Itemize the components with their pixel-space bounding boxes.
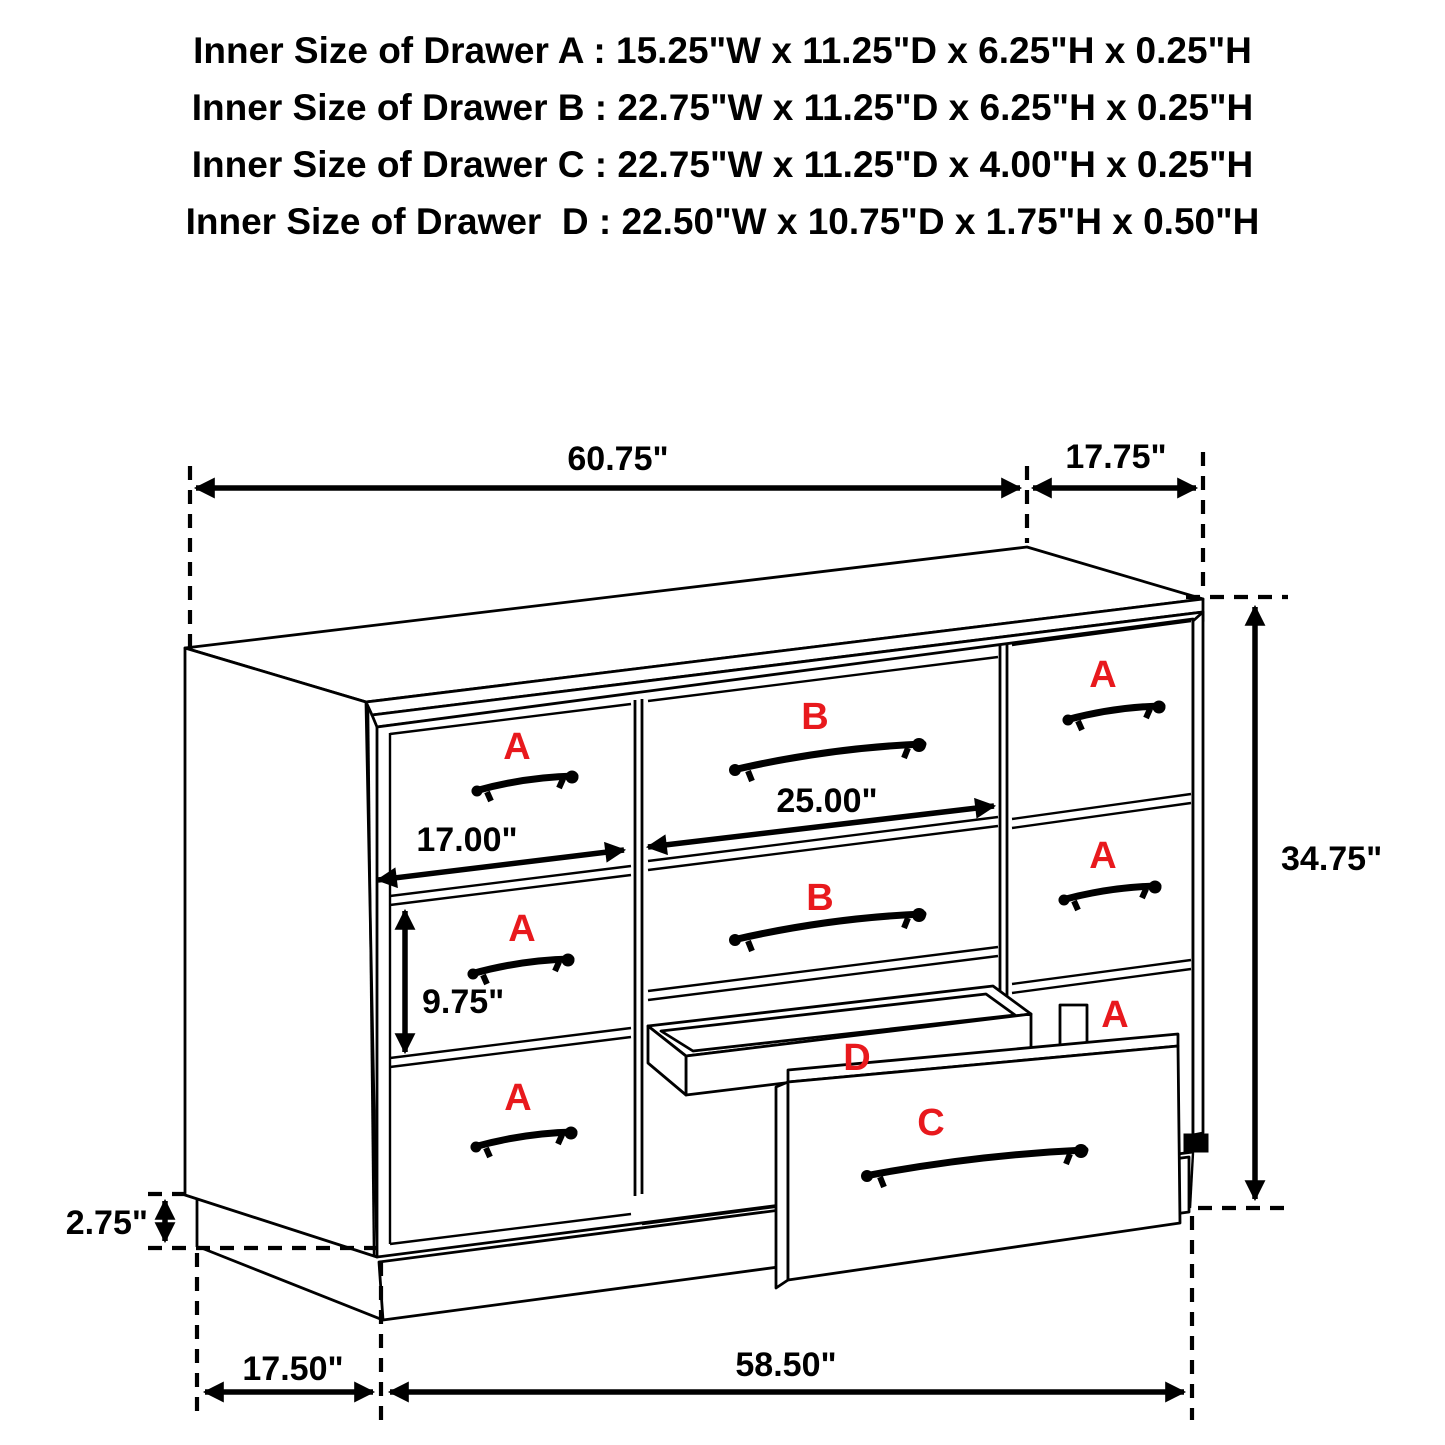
dimension-top-width: 60.75"	[196, 440, 1020, 488]
slide-bracket	[1184, 1134, 1208, 1152]
dresser-dimension-diagram: A A A B B A A A D C 60.75" 17.75"	[0, 0, 1445, 1445]
drawer-a-top-right-label: A	[1089, 654, 1116, 696]
dimension-left-drawer-width-value: 17.00"	[416, 821, 517, 859]
dimension-left-drawer-height-value: 9.75"	[422, 983, 504, 1021]
cabinet-right-edge	[1193, 612, 1203, 1135]
drawer-b-mid-label: B	[806, 877, 833, 919]
dimension-overall-height: 34.75"	[1255, 607, 1382, 1199]
dimension-base-front-width: 58.50"	[390, 1346, 1184, 1392]
dimension-base-height: 2.75"	[66, 1201, 165, 1242]
tray-d-label: D	[843, 1037, 870, 1079]
dimension-overall-height-value: 34.75"	[1281, 840, 1382, 878]
drawer-a-mid-left-label: A	[508, 908, 535, 950]
drawer-a-mid-right-label: A	[1089, 835, 1116, 877]
drawer-a-top-left-label: A	[503, 726, 530, 768]
dimension-top-depth: 17.75"	[1033, 438, 1196, 488]
dimension-base-side-depth: 17.50"	[205, 1350, 373, 1392]
dimension-base-height-value: 2.75"	[66, 1204, 148, 1242]
dimension-top-depth-value: 17.75"	[1065, 438, 1166, 476]
drawer-a-bottom-left-label: A	[504, 1077, 531, 1119]
dimension-top-width-value: 60.75"	[567, 440, 668, 478]
dimension-base-front-width-value: 58.50"	[735, 1346, 836, 1384]
cabinet-left-side-panel	[185, 648, 377, 1257]
drawer-a-bottom-right-label: A	[1101, 994, 1128, 1036]
dimension-base-side-depth-value: 17.50"	[242, 1350, 343, 1388]
drawer-c-label: C	[917, 1102, 944, 1144]
dimension-middle-drawer-width-value: 25.00"	[776, 782, 877, 820]
drawer-b-top-label: B	[801, 696, 828, 738]
